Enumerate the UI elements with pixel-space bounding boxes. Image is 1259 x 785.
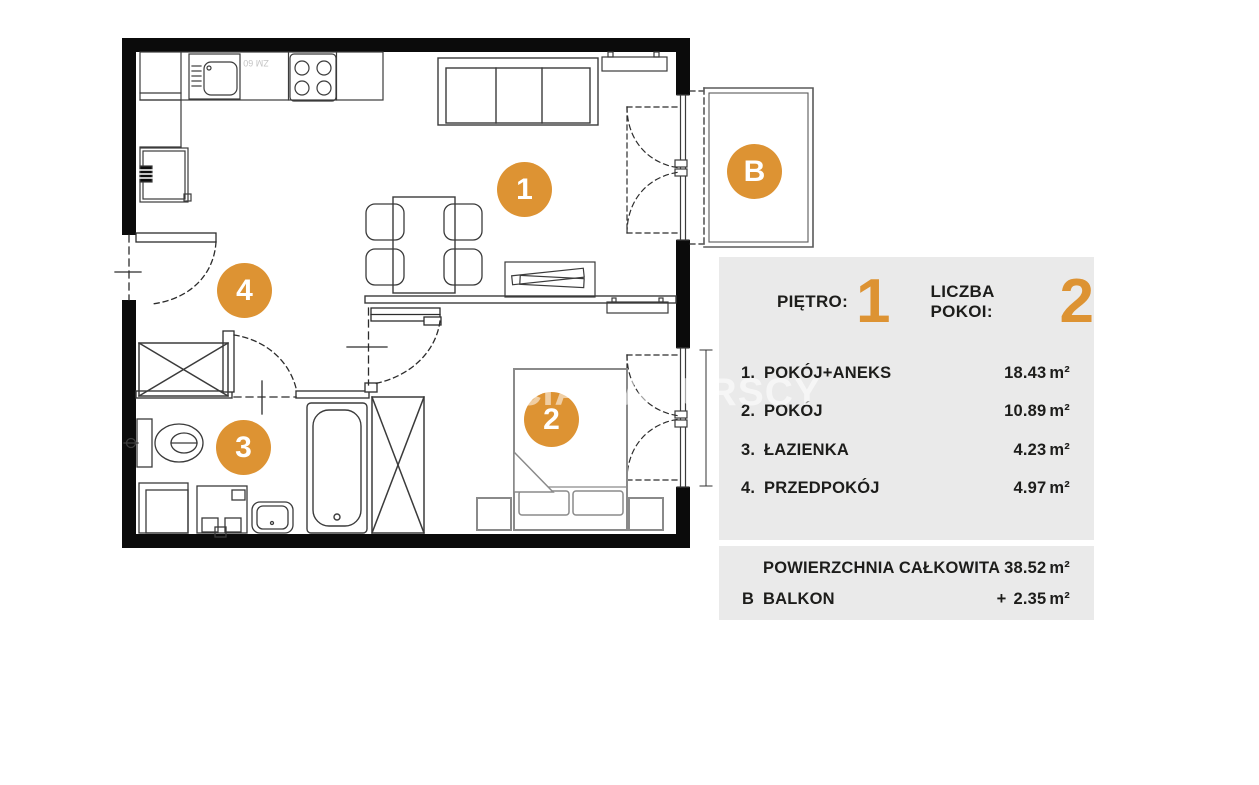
room-marker-4: 4 <box>217 263 272 318</box>
room-number: 3. <box>741 441 764 460</box>
floor-value: 1 <box>856 275 890 329</box>
entrance-door <box>115 233 216 304</box>
room-number: 4. <box>741 479 764 498</box>
kitchen-sink <box>189 54 240 99</box>
floor-label: PIĘTRO: <box>777 292 848 312</box>
summary-area: +2.35m² <box>997 590 1070 609</box>
room-area: 4.97m² <box>1014 479 1071 498</box>
rooms-count-label: LICZBA POKOI: <box>931 282 1052 322</box>
washing-machine <box>197 486 247 537</box>
summary-area: 38.52m² <box>1004 559 1070 578</box>
sofa <box>438 58 598 125</box>
bathroom-door <box>223 331 296 414</box>
room-area: 18.43m² <box>1004 364 1070 383</box>
panel-header: PIĘTRO: 1 LICZBA POKOI: 2 <box>719 257 1094 329</box>
shower-cabinet <box>139 483 188 533</box>
total-area-row: POWIERZCHNIA CAŁKOWITA 38.52m² <box>719 553 1094 584</box>
room-row: 3. ŁAZIENKA 4.23m² <box>741 431 1070 470</box>
dishwasher: ZM 60 <box>243 58 269 68</box>
agency-watermark: BRACIA SADURSCY <box>426 371 821 415</box>
fridge <box>140 148 191 202</box>
wardrobe <box>139 343 228 396</box>
room-area: 4.23m² <box>1014 441 1071 460</box>
shaft <box>372 397 424 533</box>
floor-group: PIĘTRO: 1 <box>777 275 891 329</box>
room-marker-3: 3 <box>216 420 271 475</box>
room-area: 10.89m² <box>1004 402 1070 421</box>
nightstands <box>477 498 663 530</box>
summary-name: POWIERZCHNIA CAŁKOWITA <box>763 559 1004 578</box>
summary-name: BALKON <box>763 590 997 609</box>
bathroom-sink <box>252 502 293 533</box>
balcony-marker: B <box>727 144 782 199</box>
dishwasher-label: ZM 60 <box>243 58 269 68</box>
room-row: 4. PRZEDPOKÓJ 4.97m² <box>741 470 1070 509</box>
bathtub <box>307 403 367 533</box>
stove <box>290 54 336 101</box>
summary-prefix: B <box>742 590 763 609</box>
balcony-area-row: B BALKON +2.35m² <box>719 584 1094 615</box>
rooms-count-value: 2 <box>1060 275 1094 329</box>
totals-panel: POWIERZCHNIA CAŁKOWITA 38.52m² B BALKON … <box>719 546 1094 620</box>
dining-table <box>393 197 455 293</box>
totals-rows: POWIERZCHNIA CAŁKOWITA 38.52m² B BALKON … <box>719 546 1094 615</box>
radiator-living <box>602 52 667 71</box>
tv-cabinet <box>505 262 595 297</box>
floor-plan-page: { "watermark": { "text": "BRACIA SADURSC… <box>0 0 1259 785</box>
room-name: ŁAZIENKA <box>764 441 1014 460</box>
room-marker-1: 1 <box>497 162 552 217</box>
bedroom-window <box>627 348 712 487</box>
room-name: PRZEDPOKÓJ <box>764 479 1014 498</box>
balcony-door <box>627 91 704 244</box>
rooms-count-group: LICZBA POKOI: 2 <box>931 275 1094 329</box>
dining-chairs <box>366 204 482 285</box>
